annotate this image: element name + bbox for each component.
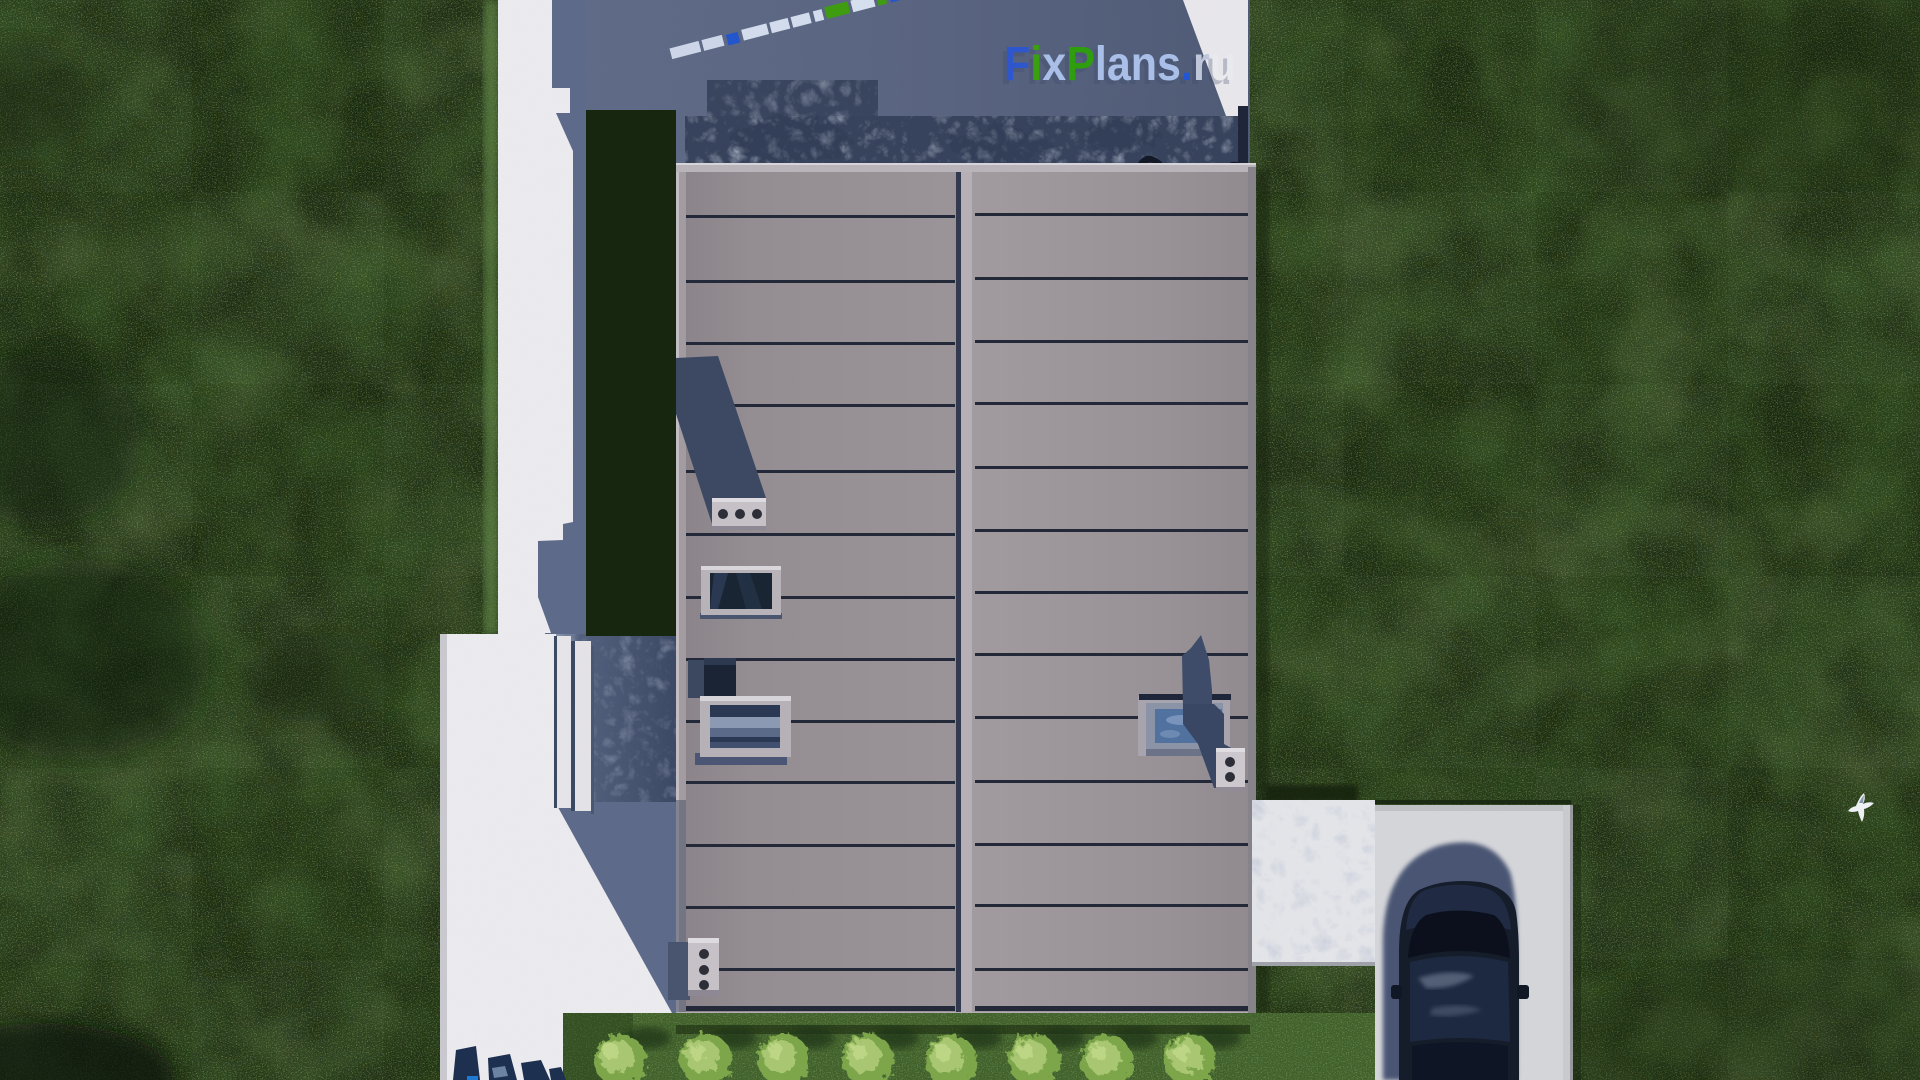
svg-text:FixPlans.ru: FixPlans.ru bbox=[1004, 38, 1236, 91]
